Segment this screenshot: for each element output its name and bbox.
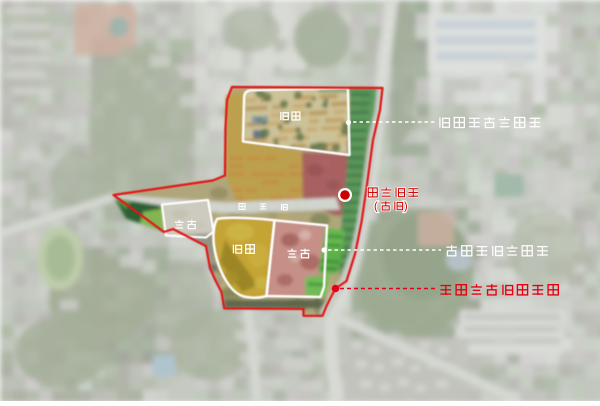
svg-text:(: (	[374, 201, 378, 213]
svg-text:): )	[404, 201, 408, 213]
